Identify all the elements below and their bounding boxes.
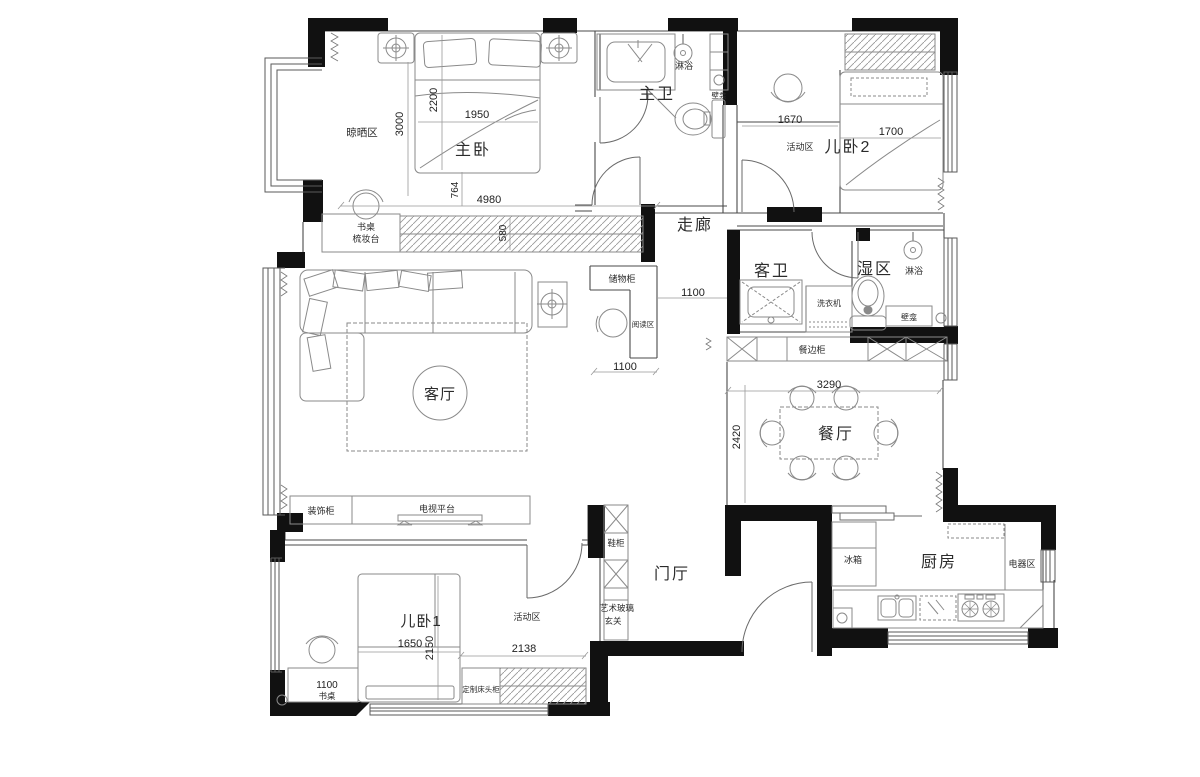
dim-1100-corridor: 1100 [681, 287, 705, 299]
window-bedroom1-left [271, 558, 282, 672]
window-wetarea-right [944, 238, 957, 326]
label-art-glass-1: 艺术玻璃 [600, 603, 635, 613]
label-shoe-cabinet: 鞋柜 [607, 538, 625, 548]
window-bedroom1-bottom [370, 704, 548, 715]
walls [270, 18, 1058, 716]
door-wet-area [812, 232, 858, 278]
label-guest-bath: 客卫 [754, 262, 790, 280]
label-desk-dresser-1: 书桌 [357, 221, 375, 232]
label-living-room: 客厅 [424, 386, 456, 403]
stove [958, 594, 1004, 621]
dim-1670: 1670 [778, 114, 802, 126]
floor-lamp [537, 282, 567, 327]
toilet-wet-area [850, 276, 886, 330]
nightstand-right [541, 33, 577, 63]
label-shower-master: 淋浴 [675, 60, 693, 71]
label-desk-dresser-2: 梳妆台 [352, 233, 379, 244]
door-master-bedroom [592, 157, 640, 205]
door-entry [742, 582, 812, 652]
dim-2138: 2138 [512, 643, 536, 655]
master-wardrobe [400, 216, 643, 252]
dim-3290: 3290 [817, 379, 841, 391]
label-custom-bedside: 定制床头柜 [462, 684, 500, 694]
floor-plan-drawing: 晾晒区 主卧 主卫 淋浴 壁龛 活动区 儿卧2 走廊 储物柜 阅读区 客卫 湿区… [0, 0, 1200, 777]
label-shower-wet: 淋浴 [905, 265, 923, 276]
window-dining-right [944, 344, 957, 380]
dim-2420: 2420 [731, 425, 743, 449]
label-sideboard: 餐边柜 [798, 344, 825, 355]
label-kitchen: 厨房 [921, 553, 957, 571]
dim-1700: 1700 [879, 126, 903, 138]
label-kids-bedroom-2: 儿卧2 [825, 138, 872, 156]
bay-window-living [263, 268, 285, 515]
dim-2150: 2150 [424, 636, 436, 660]
label-kids-bedroom-1: 儿卧1 [400, 613, 441, 630]
dim-764: 764 [450, 181, 461, 198]
label-activity-1: 活动区 [513, 611, 540, 622]
dim-1650: 1650 [398, 638, 422, 650]
kitchen-furniture [832, 522, 1043, 628]
label-activity-2: 活动区 [786, 141, 813, 152]
kitchen-sink [878, 595, 916, 620]
labels: 晾晒区 主卧 主卫 淋浴 壁龛 活动区 儿卧2 走廊 储物柜 阅读区 客卫 湿区… [307, 60, 1035, 701]
label-master-bath: 主卫 [639, 85, 675, 103]
label-entry-hall: 门厅 [654, 565, 690, 583]
sofa-pillows [303, 270, 463, 371]
dim-2200: 2200 [428, 88, 440, 112]
label-wet-area: 湿区 [857, 260, 893, 278]
dim-1100-storage: 1100 [613, 361, 637, 373]
dim-1100-desk: 1100 [316, 680, 338, 691]
floor-plan-page: 晾晒区 主卧 主卫 淋浴 壁龛 活动区 儿卧2 走廊 储物柜 阅读区 客卫 湿区… [0, 0, 1200, 777]
label-reading-area: 阅读区 [632, 319, 655, 329]
windows [263, 58, 1055, 715]
door-kids-bedroom-2 [742, 160, 794, 212]
shoe-cabinet-box [604, 505, 628, 600]
label-master-bedroom: 主卧 [455, 141, 491, 159]
label-dining-room: 餐厅 [818, 425, 854, 443]
label-tv-platform: 电视平台 [419, 503, 455, 514]
label-niche-master: 壁龛 [712, 90, 727, 100]
sliding-door-kitchen [832, 506, 922, 520]
dimension-lines [338, 35, 943, 700]
dim-580: 580 [498, 224, 509, 241]
label-desk-1: 书桌 [318, 691, 336, 701]
wet-area-fixtures [850, 232, 946, 330]
doors [527, 95, 922, 652]
living-room-furniture [300, 270, 567, 451]
nightstand-left [378, 33, 414, 63]
reading-nook [596, 309, 627, 337]
bay-window-top-left [265, 58, 322, 192]
dimension-labels: 2200 1950 3000 764 4980 580 1670 1700 11… [316, 88, 903, 691]
label-storage-cabinet: 储物柜 [608, 273, 635, 284]
washing-machine [806, 286, 852, 332]
floor-drain-kitchen [833, 608, 852, 628]
dim-4980: 4980 [477, 194, 501, 206]
label-appliance-area: 电器区 [1008, 558, 1035, 569]
label-decor-cabinet: 装饰柜 [307, 505, 334, 516]
label-fridge: 冰箱 [844, 554, 862, 565]
label-washing-machine: 洗衣机 [817, 298, 841, 308]
door-kids-bedroom-1 [527, 543, 582, 598]
window-kitchen-bottom [888, 632, 1028, 644]
cutting-board [920, 596, 956, 620]
window-bedroom2-right [944, 72, 957, 172]
label-drying-area: 晾晒区 [346, 126, 378, 139]
label-corridor: 走廊 [677, 216, 713, 234]
kids2-furniture [771, 34, 943, 190]
toilet-master [675, 100, 725, 138]
dim-1950: 1950 [465, 109, 489, 121]
label-art-glass-2: 玄关 [604, 616, 622, 626]
label-niche-wet: 壁龛 [901, 312, 917, 322]
dim-3000: 3000 [394, 112, 406, 136]
fridge [832, 522, 876, 586]
